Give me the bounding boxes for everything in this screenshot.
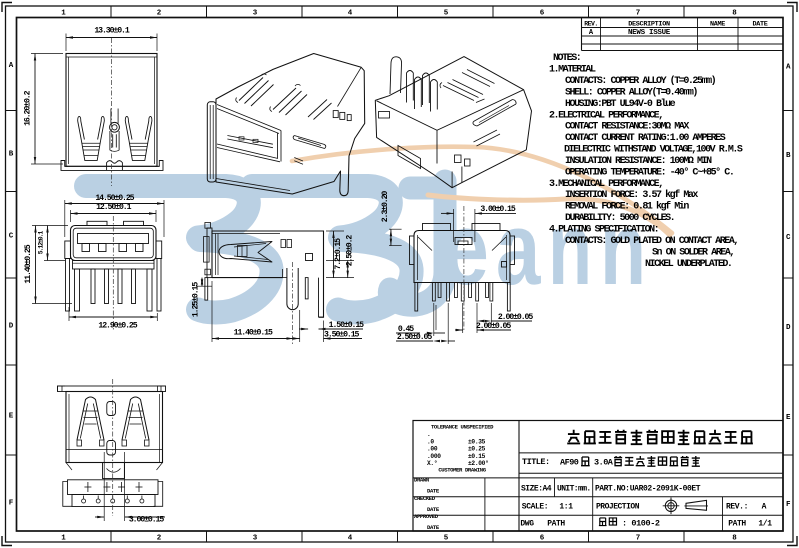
svg-text:: 0100-2: : 0100-2: [622, 519, 660, 529]
svg-text:5: 5: [444, 10, 449, 18]
svg-text:CONTACT RESISTANCE:30MΩ MAX: CONTACT RESISTANCE:30MΩ MAX: [565, 122, 689, 133]
svg-text:A: A: [762, 503, 767, 512]
svg-text:X.°: X.°: [427, 460, 437, 467]
svg-text:2.00±0.05: 2.00±0.05: [498, 313, 534, 322]
svg-text:1.50±0.15: 1.50±0.15: [329, 321, 365, 330]
svg-text:AF90: AF90: [560, 458, 579, 468]
svg-text:DESCRIPTION: DESCRIPTION: [628, 20, 670, 28]
svg-text:±0.35: ±0.35: [468, 438, 486, 445]
svg-text:.: .: [427, 431, 430, 438]
svg-text:NAME: NAME: [710, 20, 725, 28]
svg-text:REV.: REV.: [584, 20, 598, 27]
svg-text:13.30±0.1: 13.30±0.1: [94, 27, 130, 36]
svg-text:11.40±0.15: 11.40±0.15: [234, 329, 273, 338]
svg-text:Sn ON SOLDER AREA,: Sn ON SOLDER AREA,: [652, 247, 734, 258]
svg-text:C: C: [786, 234, 791, 242]
svg-text:1.25±0.15: 1.25±0.15: [192, 282, 201, 318]
svg-text:HOUSING:PBT UL94V-0 Blue: HOUSING:PBT UL94V-0 Blue: [565, 98, 676, 110]
svg-text:5: 5: [444, 535, 449, 543]
svg-text:4.PLATING SPECIFICATION:: 4.PLATING SPECIFICATION:: [549, 225, 658, 236]
svg-text:2.50±0.05: 2.50±0.05: [397, 333, 433, 342]
svg-text:CONTACT CURRENT RATING:1.00 A: CONTACT CURRENT RATING:1.00 AMPERES: [565, 133, 726, 144]
svg-text:.000: .000: [427, 453, 441, 460]
svg-text:4: 4: [348, 10, 353, 18]
svg-text:D: D: [9, 323, 14, 331]
svg-text:8: 8: [732, 535, 737, 543]
svg-text:1:1: 1:1: [559, 503, 573, 512]
svg-text:a: a: [494, 198, 543, 315]
svg-text:DWG: DWG: [520, 520, 534, 529]
svg-text:.00: .00: [427, 446, 438, 453]
svg-text:REV.:: REV.:: [726, 503, 748, 512]
svg-text:12.50±0.1: 12.50±0.1: [96, 203, 132, 212]
svg-text:CUSTOMER DRAWING: CUSTOMER DRAWING: [438, 467, 486, 474]
svg-text:1.MATERIAL: 1.MATERIAL: [549, 65, 596, 76]
svg-text:UAR02-2091K-00ET: UAR02-2091K-00ET: [630, 485, 701, 494]
svg-text:D: D: [786, 324, 791, 332]
svg-text:.0: .0: [427, 438, 434, 445]
svg-text:1: 1: [61, 10, 66, 18]
svg-text:2.ELECTRICAL PERFORMANCE,: 2.ELECTRICAL PERFORMANCE,: [549, 110, 663, 121]
svg-text:2.3±0.20: 2.3±0.20: [381, 191, 390, 223]
svg-text:3.50±0.15: 3.50±0.15: [324, 330, 360, 339]
svg-text:3: 3: [253, 10, 258, 18]
svg-text:3: 3: [253, 535, 258, 543]
svg-text:TOLERANCE UNSPECIFIED: TOLERANCE UNSPECIFIED: [431, 424, 494, 431]
svg-text:8: 8: [732, 10, 737, 18]
svg-text:REMOVAL FORCE: 0.81 kgf Min: REMOVAL FORCE: 0.81 kgf Min: [565, 201, 689, 213]
svg-text:A: A: [786, 64, 791, 72]
svg-text:APPROVED: APPROVED: [414, 513, 439, 520]
svg-text:C: C: [9, 233, 14, 241]
svg-text:B: B: [786, 152, 791, 160]
svg-text:2.50±0.2: 2.50±0.2: [346, 235, 355, 267]
svg-text:2: 2: [157, 10, 162, 18]
svg-text:11.40±0.25: 11.40±0.25: [24, 244, 33, 283]
svg-text:3.00±0.15: 3.00±0.15: [480, 205, 516, 214]
svg-text:OPERATING TEMPERATURE: -40° C~: OPERATING TEMPERATURE: -40° C~+85° C.: [565, 166, 733, 178]
svg-text:UNIT:mm.: UNIT:mm.: [557, 485, 591, 494]
svg-text:F: F: [9, 500, 14, 508]
svg-text:CHECKED: CHECKED: [414, 495, 436, 502]
svg-text:5.12±0.1: 5.12±0.1: [38, 231, 45, 255]
svg-text:E: E: [786, 414, 791, 422]
svg-text:DIELECTRIC WITHSTAND VOLTAGE,1: DIELECTRIC WITHSTAND VOLTAGE,100V R.M.S: [564, 145, 743, 156]
svg-text:±0.25: ±0.25: [468, 446, 486, 453]
svg-text:3.00±0.15: 3.00±0.15: [129, 516, 165, 525]
svg-text:DATE: DATE: [752, 20, 767, 28]
svg-text:A: A: [9, 62, 14, 70]
svg-text:PATH: PATH: [547, 520, 565, 529]
svg-text:1: 1: [61, 535, 66, 543]
svg-text:INSULATION RESISTANCE: 100MΩ: INSULATION RESISTANCE: 100MΩ MIN: [565, 156, 712, 167]
svg-text:CONTACTS: GOLD PLATED ON CONTA: CONTACTS: GOLD PLATED ON CONTACT AREA,: [565, 236, 738, 247]
svg-text:DATE: DATE: [427, 524, 440, 531]
svg-text:PROJECTION: PROJECTION: [596, 503, 640, 512]
svg-text:NICKEL UNDERPLATED.: NICKEL UNDERPLATED.: [645, 259, 731, 270]
svg-text:TITLE:: TITLE:: [522, 457, 550, 467]
svg-text:2: 2: [157, 535, 162, 543]
svg-text:6: 6: [540, 10, 545, 18]
svg-text:DATE: DATE: [427, 488, 440, 495]
svg-text:NEWS ISSUE: NEWS ISSUE: [628, 29, 671, 37]
svg-text:16.20±0.2: 16.20±0.2: [24, 90, 33, 126]
svg-text:2.00±0.05: 2.00±0.05: [476, 322, 512, 331]
svg-text:6: 6: [540, 535, 545, 543]
svg-text:SCALE:: SCALE:: [522, 503, 548, 512]
svg-text:7.2±0.15: 7.2±0.15: [334, 238, 343, 270]
svg-text:SHELL: COPPER ALLOY(T=0.40mm): SHELL: COPPER ALLOY(T=0.40mm): [565, 86, 697, 98]
svg-text:PART.NO:: PART.NO:: [595, 485, 629, 494]
svg-text:DRAWN: DRAWN: [414, 477, 429, 484]
svg-text:CONTACTS: COPPER ALLOY (T=0.25: CONTACTS: COPPER ALLOY (T=0.25mm): [565, 75, 716, 87]
svg-text:3.0A: 3.0A: [594, 458, 614, 468]
svg-text:B: B: [9, 151, 14, 159]
svg-text:SIZE:A4: SIZE:A4: [521, 485, 552, 494]
svg-text:4: 4: [348, 535, 353, 543]
svg-text:NOTES:: NOTES:: [553, 53, 580, 64]
svg-text:3.MECHANICAL PERFORMANCE,: 3.MECHANICAL PERFORMANCE,: [549, 179, 663, 190]
svg-text:F: F: [786, 501, 791, 509]
svg-text:7: 7: [636, 10, 641, 18]
svg-text:±0.15: ±0.15: [468, 453, 486, 460]
svg-text:PATH: PATH: [728, 520, 746, 529]
svg-text:1/1: 1/1: [758, 520, 772, 529]
svg-text:DATE: DATE: [427, 506, 440, 513]
svg-text:7: 7: [636, 535, 641, 543]
svg-text:INSERTION FORCE: 3.57 kgf Max: INSERTION FORCE: 3.57 kgf Max: [565, 189, 698, 201]
svg-text:12.90±0.25: 12.90±0.25: [98, 322, 137, 331]
svg-text:E: E: [9, 413, 14, 421]
svg-text:DURABILITY: 5000 CYCLES.: DURABILITY: 5000 CYCLES.: [565, 213, 674, 224]
